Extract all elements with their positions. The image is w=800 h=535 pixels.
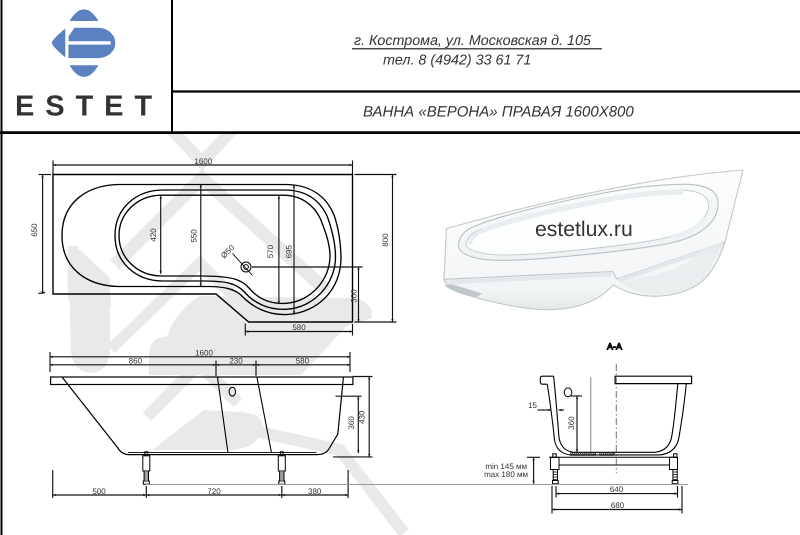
svg-text:500: 500 [92,487,106,496]
svg-text:580: 580 [296,357,310,366]
svg-text:1600: 1600 [195,349,213,358]
svg-text:230: 230 [229,357,243,366]
svg-text:360: 360 [347,416,356,430]
svg-text:1600: 1600 [194,157,212,166]
svg-text:г. Кострома, ул. Московская д.: г. Кострома, ул. Московская д. 105 [354,33,591,49]
svg-text:650: 650 [30,223,39,237]
svg-text:ВАННА «ВЕРОНА» ПРАВАЯ 1600X800: ВАННА «ВЕРОНА» ПРАВАЯ 1600X800 [363,104,634,121]
svg-text:380: 380 [308,487,322,496]
svg-text:А-А: А-А [607,342,622,352]
svg-text:тел. 8 (4942) 33 61 71: тел. 8 (4942) 33 61 71 [383,53,531,69]
svg-text:640: 640 [610,485,624,494]
svg-text:860: 860 [129,357,143,366]
svg-text:580: 580 [292,323,306,332]
svg-text:420: 420 [149,228,158,242]
svg-text:max 180 мм: max 180 мм [484,470,528,479]
svg-text:720: 720 [207,487,221,496]
svg-text:680: 680 [611,501,625,510]
svg-text:15: 15 [528,401,537,410]
svg-text:800: 800 [381,233,390,247]
svg-text:estetlux.ru: estetlux.ru [535,218,633,241]
svg-text:430: 430 [358,410,367,424]
svg-text:695: 695 [285,244,294,258]
svg-text:570: 570 [266,244,275,258]
svg-text:Ø50: Ø50 [219,243,236,260]
svg-text:ESTET: ESTET [15,91,163,123]
svg-text:360: 360 [567,416,576,430]
svg-text:550: 550 [189,229,198,243]
svg-text:300: 300 [350,289,359,303]
